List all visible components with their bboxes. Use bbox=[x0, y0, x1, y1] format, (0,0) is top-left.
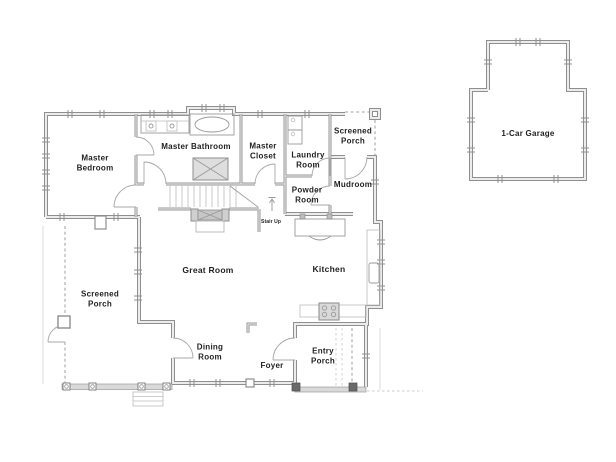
floor-plan-canvas: Master Bedroom Master Bathroom Master Cl… bbox=[0, 0, 616, 462]
interior-walls bbox=[136, 114, 330, 333]
kitchen-island bbox=[295, 214, 345, 240]
bathtub bbox=[190, 114, 234, 135]
floor-plan-drawing bbox=[0, 0, 616, 462]
vanity-sinks bbox=[141, 115, 189, 133]
fireplace bbox=[191, 209, 229, 232]
exterior-walls bbox=[46, 42, 585, 387]
porch-rail-columns bbox=[58, 216, 172, 390]
staircase bbox=[170, 186, 276, 211]
stair-up-arrow bbox=[269, 198, 276, 212]
washer-dryer bbox=[288, 116, 302, 144]
kitchen-counters bbox=[300, 230, 380, 317]
shower bbox=[193, 158, 228, 180]
porch-steps bbox=[133, 392, 163, 406]
range-stove bbox=[319, 303, 339, 320]
